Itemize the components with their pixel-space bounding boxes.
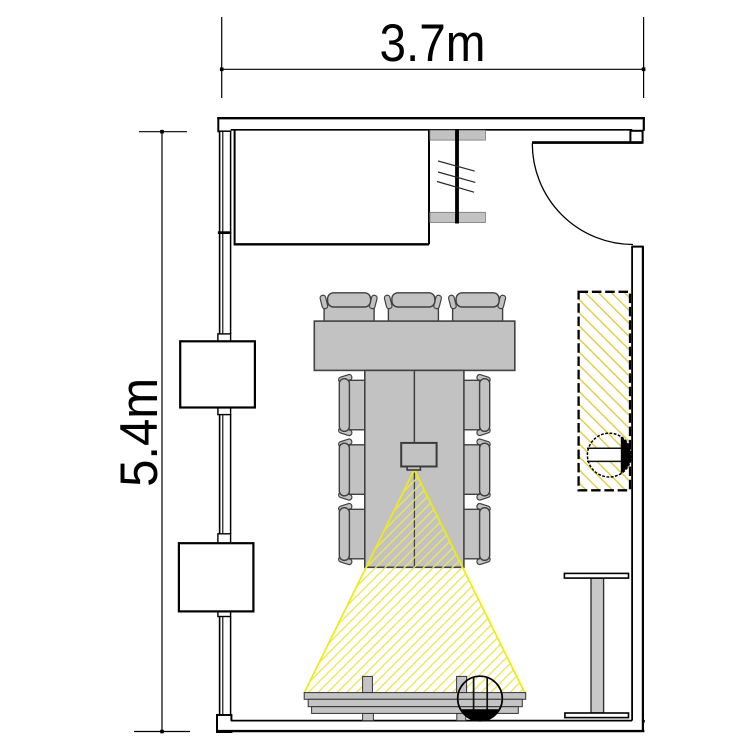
svg-text:3.7m: 3.7m xyxy=(380,14,486,73)
svg-text:5.4m: 5.4m xyxy=(110,378,169,487)
